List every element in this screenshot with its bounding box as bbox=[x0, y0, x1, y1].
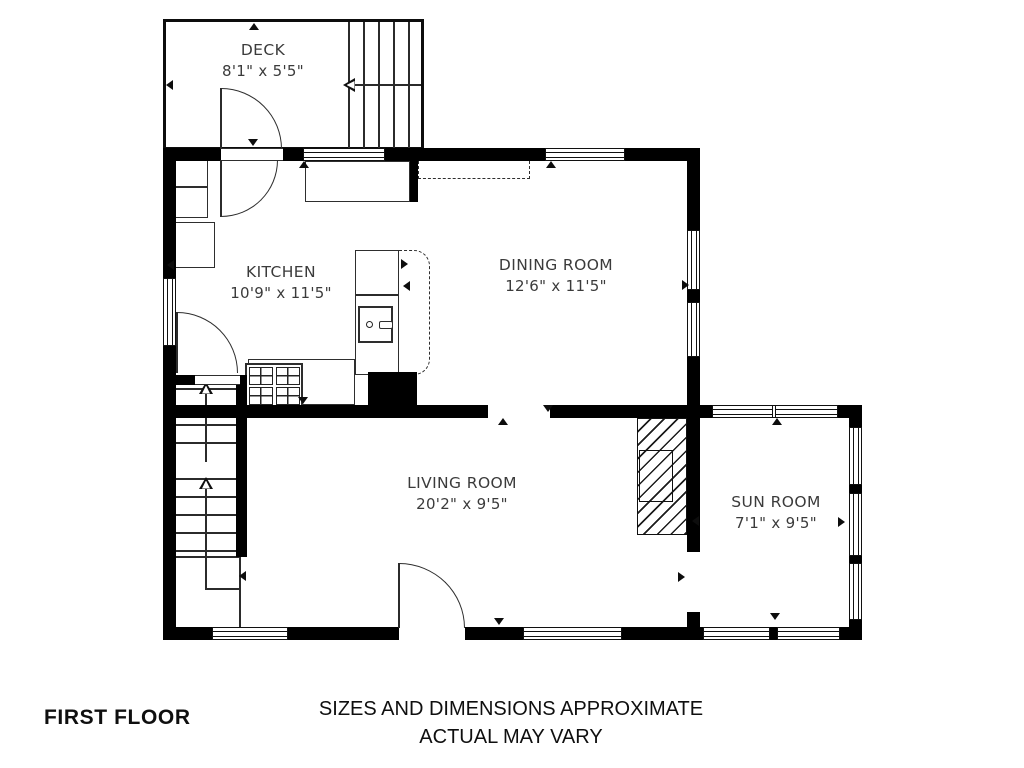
room-dimensions: 20'2" x 9'5" bbox=[407, 494, 517, 515]
room-dimensions: 12'6" x 11'5" bbox=[499, 276, 613, 297]
sink-drain-icon bbox=[366, 321, 373, 328]
room-dimensions: 10'9" x 11'5" bbox=[230, 283, 332, 304]
wall-segment bbox=[770, 627, 777, 640]
dimension-marker bbox=[543, 405, 553, 412]
dimension-marker bbox=[770, 613, 780, 620]
wall-segment bbox=[687, 290, 700, 302]
wall-segment bbox=[163, 346, 176, 640]
window bbox=[523, 627, 622, 640]
stair-up-arrow-tail bbox=[205, 588, 240, 590]
wall-segment bbox=[849, 556, 862, 563]
wall-segment bbox=[625, 148, 700, 161]
door-leaf bbox=[220, 160, 222, 217]
floor-plan: DECK 8'1" x 5'5" KITCHEN 10'9" x 11'5" D… bbox=[0, 0, 1024, 768]
window bbox=[703, 627, 770, 640]
dimension-marker bbox=[299, 161, 309, 168]
wall-segment bbox=[849, 485, 862, 493]
kitchen-cabinet bbox=[172, 187, 208, 218]
stair-rail-line bbox=[239, 557, 241, 628]
wall-segment bbox=[163, 148, 221, 161]
sink-faucet-icon bbox=[379, 321, 393, 329]
window bbox=[212, 627, 288, 640]
wall-segment bbox=[622, 627, 703, 640]
dimension-marker bbox=[298, 397, 308, 404]
window bbox=[849, 493, 862, 556]
dimension-marker bbox=[678, 572, 685, 582]
door-swing-arc bbox=[177, 312, 238, 373]
stove-burner-icon bbox=[276, 387, 300, 405]
room-label-kitchen: KITCHEN 10'9" x 11'5" bbox=[230, 262, 332, 304]
room-name: DECK bbox=[222, 40, 304, 61]
kitchen-peninsula-divider bbox=[356, 294, 398, 296]
fireplace-inner-box bbox=[639, 450, 673, 502]
window bbox=[163, 278, 176, 346]
door-leaf bbox=[398, 563, 400, 628]
window bbox=[303, 148, 385, 161]
stair-up-arrow-line bbox=[205, 488, 207, 590]
wall-segment bbox=[849, 405, 862, 427]
dimension-marker bbox=[248, 139, 258, 146]
dimension-marker bbox=[838, 517, 845, 527]
kitchen-counter-top bbox=[305, 161, 410, 202]
room-dimensions: 7'1" x 9'5" bbox=[731, 513, 820, 534]
room-name: LIVING ROOM bbox=[407, 473, 517, 494]
room-label-dining-room: DINING ROOM 12'6" x 11'5" bbox=[499, 255, 613, 297]
dimension-marker bbox=[403, 281, 410, 291]
disclaimer-line-1: SIZES AND DIMENSIONS APPROXIMATE bbox=[319, 695, 703, 723]
dimension-marker bbox=[401, 259, 408, 269]
wall-segment bbox=[687, 161, 700, 230]
door-opening bbox=[195, 375, 240, 385]
door-swing-arc bbox=[399, 563, 465, 628]
dimension-marker bbox=[546, 161, 556, 168]
door-leaf bbox=[176, 312, 178, 373]
wall-segment bbox=[283, 148, 303, 161]
dimension-marker bbox=[682, 280, 689, 290]
window bbox=[777, 627, 840, 640]
wall-segment bbox=[840, 627, 862, 640]
stove-burner-icon bbox=[249, 387, 273, 405]
wall-segment bbox=[163, 375, 195, 385]
wall-segment bbox=[687, 405, 712, 418]
deck-stair-arrow-line bbox=[354, 84, 421, 86]
kitchen-cabinet bbox=[173, 222, 215, 268]
dimension-marker bbox=[166, 80, 173, 90]
room-name: KITCHEN bbox=[230, 262, 332, 283]
stove-burner-icon bbox=[249, 367, 273, 385]
window bbox=[849, 563, 862, 620]
room-name: DINING ROOM bbox=[499, 255, 613, 276]
door-swing-arc bbox=[221, 160, 278, 217]
stove-burner-icon bbox=[276, 367, 300, 385]
window bbox=[687, 302, 700, 357]
wall-segment bbox=[410, 161, 418, 202]
wall-segment bbox=[163, 405, 488, 418]
wall-segment bbox=[687, 418, 700, 552]
door-leaf bbox=[220, 88, 222, 149]
dimension-marker bbox=[167, 260, 174, 270]
stair-edge bbox=[176, 556, 240, 558]
disclaimer-line-2: ACTUAL MAY VARY bbox=[319, 723, 703, 751]
wall-segment bbox=[465, 627, 523, 640]
dimension-marker bbox=[692, 516, 699, 526]
dimension-marker bbox=[239, 571, 246, 581]
disclaimer: SIZES AND DIMENSIONS APPROXIMATE ACTUAL … bbox=[319, 695, 703, 751]
dimension-marker bbox=[772, 418, 782, 425]
stair-up-arrow-line bbox=[205, 393, 207, 462]
wall-segment bbox=[368, 372, 417, 412]
stair-side-wall bbox=[236, 375, 247, 557]
window bbox=[849, 427, 862, 485]
sun-window-divider bbox=[772, 406, 776, 417]
dimension-marker bbox=[494, 618, 504, 625]
room-label-deck: DECK 8'1" x 5'5" bbox=[222, 40, 304, 82]
wall-segment bbox=[385, 148, 545, 161]
room-label-living-room: LIVING ROOM 20'2" x 9'5" bbox=[407, 473, 517, 515]
wall-segment bbox=[288, 627, 399, 640]
wall-segment bbox=[163, 627, 212, 640]
room-name: SUN ROOM bbox=[731, 492, 820, 513]
dimension-marker bbox=[498, 418, 508, 425]
room-label-sun-room: SUN ROOM 7'1" x 9'5" bbox=[731, 492, 820, 534]
floor-title: FIRST FLOOR bbox=[44, 706, 191, 730]
wall-segment bbox=[550, 405, 700, 418]
dimension-marker bbox=[249, 23, 259, 30]
window bbox=[545, 148, 625, 161]
room-dimensions: 8'1" x 5'5" bbox=[222, 61, 304, 82]
